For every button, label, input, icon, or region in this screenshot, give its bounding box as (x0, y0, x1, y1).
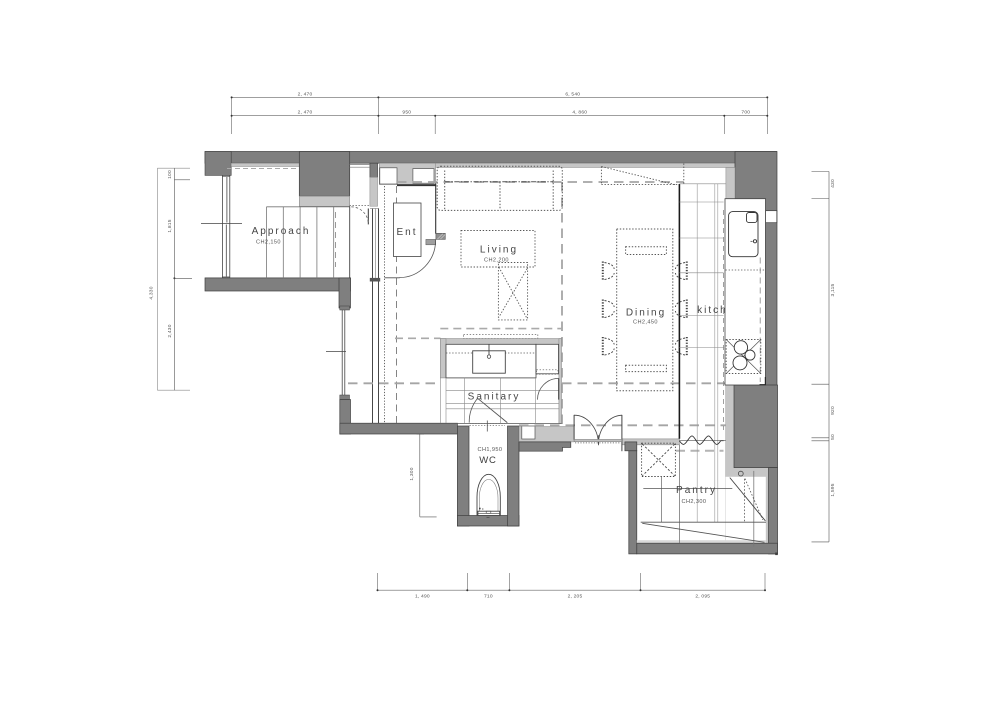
svg-text:4,330: 4,330 (149, 286, 155, 299)
svg-text:Living: Living (480, 245, 518, 256)
svg-text:100: 100 (167, 170, 173, 179)
svg-text:3,115: 3,115 (830, 283, 836, 296)
svg-text:4, 860: 4, 860 (572, 110, 587, 116)
svg-text:920: 920 (830, 406, 836, 415)
svg-text:2, 470: 2, 470 (298, 91, 313, 97)
svg-text:CH2,450: CH2,450 (633, 320, 658, 326)
svg-text:1,300: 1,300 (409, 467, 415, 480)
svg-text:2,430: 2,430 (167, 324, 173, 337)
svg-text:2, 205: 2, 205 (568, 593, 583, 599)
svg-text:1,815: 1,815 (167, 219, 173, 232)
svg-text:700: 700 (741, 110, 750, 116)
svg-text:Ent: Ent (396, 227, 417, 238)
svg-text:430: 430 (830, 179, 836, 188)
svg-text:CH2,150: CH2,150 (256, 240, 281, 246)
svg-text:WC: WC (479, 455, 496, 466)
svg-text:Approach: Approach (252, 226, 311, 237)
svg-text:CH2,300: CH2,300 (682, 499, 707, 505)
svg-text:Pantry: Pantry (676, 485, 717, 496)
svg-text:50: 50 (830, 434, 836, 440)
svg-text:1,595: 1,595 (830, 483, 836, 496)
svg-text:6, 540: 6, 540 (565, 91, 580, 97)
svg-text:2, 470: 2, 470 (298, 110, 313, 116)
svg-text:Dining: Dining (626, 308, 666, 319)
svg-text:2, 095: 2, 095 (695, 593, 710, 599)
svg-text:CH1,950: CH1,950 (478, 447, 503, 453)
svg-text:1, 490: 1, 490 (415, 593, 430, 599)
svg-text:950: 950 (402, 110, 411, 116)
svg-text:710: 710 (484, 593, 493, 599)
